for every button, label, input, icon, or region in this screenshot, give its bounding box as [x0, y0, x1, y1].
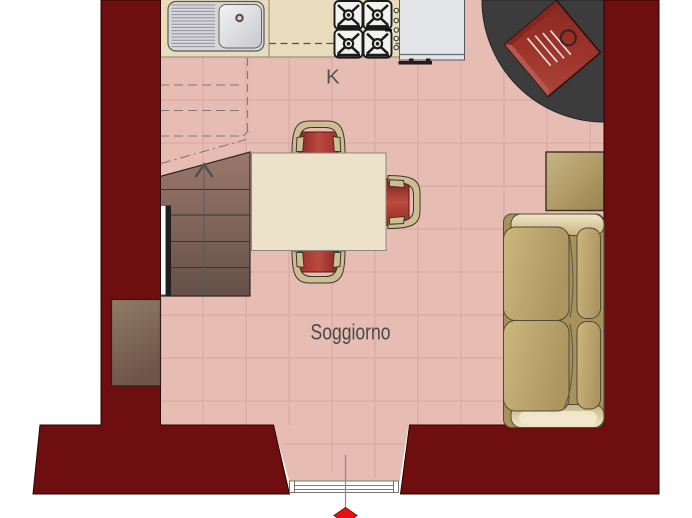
svg-text:K: K: [326, 65, 340, 88]
svg-text:Soggiorno: Soggiorno: [311, 320, 391, 345]
